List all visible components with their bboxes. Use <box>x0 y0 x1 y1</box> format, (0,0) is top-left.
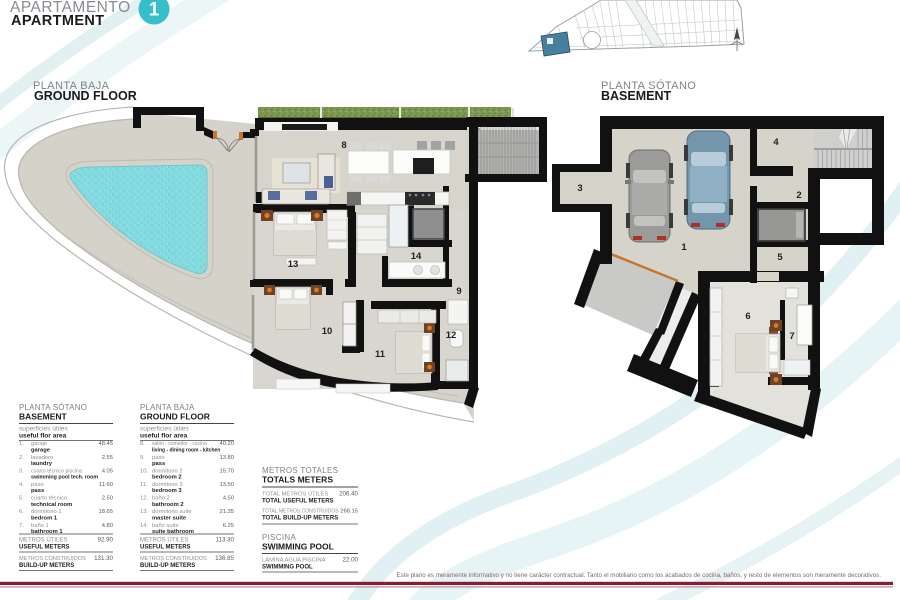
svg-text:TOTAL BUILD-UP METERS: TOTAL BUILD-UP METERS <box>262 516 338 522</box>
svg-text:METROS CONSTRUIDOS: METROS CONSTRUIDOS <box>140 556 207 562</box>
svg-text:9.: 9. <box>140 455 145 461</box>
svg-text:TOTAL USEFUL METERS: TOTAL USEFUL METERS <box>262 499 334 505</box>
svg-text:4.50: 4.50 <box>223 496 234 502</box>
svg-text:lavadero: lavadero <box>31 455 53 461</box>
svg-text:2.50: 2.50 <box>102 496 113 502</box>
svg-text:APARTMENT: APARTMENT <box>11 13 105 29</box>
svg-text:bedrom 1: bedrom 1 <box>31 515 58 521</box>
svg-text:2: 2 <box>796 190 801 201</box>
svg-text:5: 5 <box>777 252 783 263</box>
svg-text:dormitorio 3: dormitorio 3 <box>152 482 183 488</box>
svg-text:BASEMENT: BASEMENT <box>19 412 68 422</box>
svg-text:3.: 3. <box>19 468 24 474</box>
svg-text:3: 3 <box>577 183 582 194</box>
svg-text:Este plano es meramente inform: Este plano es meramente informativo y no… <box>397 572 882 579</box>
svg-text:GROUND FLOOR: GROUND FLOOR <box>34 89 137 103</box>
svg-text:cuarto técnico piscina: cuarto técnico piscina <box>31 468 82 474</box>
svg-text:10.: 10. <box>140 468 148 474</box>
svg-text:136.85: 136.85 <box>215 555 234 562</box>
svg-text:useful flor area: useful flor area <box>140 433 188 440</box>
svg-text:13: 13 <box>288 259 299 270</box>
svg-text:USEFUL METERS: USEFUL METERS <box>140 545 191 551</box>
svg-text:1.: 1. <box>19 441 24 447</box>
svg-text:paso: paso <box>152 455 165 461</box>
svg-text:SWIMMING POOL: SWIMMING POOL <box>262 565 313 571</box>
svg-text:baño 2: baño 2 <box>152 496 170 502</box>
svg-text:9: 9 <box>456 286 461 297</box>
svg-text:40.20: 40.20 <box>219 441 234 447</box>
svg-text:92.90: 92.90 <box>98 537 114 544</box>
svg-text:4.05: 4.05 <box>102 468 113 474</box>
svg-text:7.: 7. <box>19 523 24 529</box>
svg-text:11: 11 <box>375 349 386 360</box>
svg-text:TOTAL METROS ÚTILES: TOTAL METROS ÚTILES <box>262 491 328 498</box>
svg-text:1: 1 <box>149 0 160 21</box>
svg-text:dormitorio 1: dormitorio 1 <box>31 509 62 515</box>
svg-text:2.55: 2.55 <box>102 455 113 461</box>
svg-text:6: 6 <box>745 311 750 322</box>
svg-text:22.00: 22.00 <box>343 557 359 564</box>
svg-text:4.: 4. <box>19 482 24 488</box>
svg-text:BASEMENT: BASEMENT <box>601 89 672 103</box>
svg-text:206.40: 206.40 <box>339 491 358 498</box>
svg-text:living - dining room - kitchen: living - dining room - kitchen <box>152 447 220 453</box>
svg-text:21.35: 21.35 <box>219 509 234 515</box>
svg-text:cuarto técnico: cuarto técnico <box>31 496 67 502</box>
svg-text:48.45: 48.45 <box>98 441 113 447</box>
svg-text:pass: pass <box>152 461 165 467</box>
svg-text:laundry: laundry <box>31 461 53 467</box>
svg-text:268.15: 268.15 <box>340 509 358 515</box>
svg-text:11.: 11. <box>140 482 148 488</box>
svg-text:superficies útiles: superficies útiles <box>19 426 68 433</box>
svg-text:4.80: 4.80 <box>102 523 113 529</box>
svg-text:13.80: 13.80 <box>219 455 234 461</box>
svg-text:bathroom 2: bathroom 2 <box>152 502 184 508</box>
svg-text:13.: 13. <box>140 509 148 515</box>
svg-text:113.30: 113.30 <box>216 537 235 544</box>
svg-text:11.60: 11.60 <box>99 482 113 488</box>
svg-text:12.: 12. <box>140 496 148 502</box>
svg-text:paso: paso <box>31 482 44 488</box>
svg-text:dormitorio 2: dormitorio 2 <box>152 468 183 474</box>
svg-text:GROUND FLOOR: GROUND FLOOR <box>140 412 210 422</box>
svg-text:dormitorio suite: dormitorio suite <box>152 509 192 515</box>
svg-text:bedroom 3: bedroom 3 <box>152 488 182 494</box>
svg-text:METROS CONSTRUIDOS: METROS CONSTRUIDOS <box>19 556 86 562</box>
svg-text:master suite: master suite <box>152 515 187 521</box>
svg-text:4: 4 <box>773 137 779 148</box>
svg-text:TOTAL METROS CONSTRUIDOS: TOTAL METROS CONSTRUIDOS <box>262 509 339 515</box>
svg-text:BUILD-UP METERS: BUILD-UP METERS <box>19 563 74 569</box>
svg-text:18.65: 18.65 <box>98 509 113 515</box>
svg-text:useful flor area: useful flor area <box>19 433 67 440</box>
svg-text:10: 10 <box>322 326 333 337</box>
svg-text:METROS ÚTILES: METROS ÚTILES <box>19 537 67 544</box>
svg-text:13.50: 13.50 <box>219 482 234 488</box>
svg-text:baño 1: baño 1 <box>31 523 49 529</box>
svg-text:14: 14 <box>411 251 422 262</box>
svg-text:6.25: 6.25 <box>223 523 234 529</box>
svg-text:TOTALS METERS: TOTALS METERS <box>262 475 333 485</box>
svg-text:bedroom 2: bedroom 2 <box>152 475 182 481</box>
svg-text:7: 7 <box>789 331 794 342</box>
svg-text:BUILD-UP METERS: BUILD-UP METERS <box>140 563 195 569</box>
svg-text:LÁMINA AGUA PISCINA: LÁMINA AGUA PISCINA <box>262 557 326 564</box>
svg-text:8.: 8. <box>140 441 145 447</box>
svg-text:12: 12 <box>446 330 457 341</box>
svg-text:SWIMMING POOL: SWIMMING POOL <box>262 542 334 552</box>
svg-text:1: 1 <box>681 242 687 253</box>
svg-text:8: 8 <box>341 140 346 151</box>
svg-text:METROS ÚTILES: METROS ÚTILES <box>140 537 188 544</box>
svg-text:15.70: 15.70 <box>219 468 234 474</box>
svg-text:superficies útiles: superficies útiles <box>140 426 189 433</box>
svg-text:garaje: garaje <box>31 441 47 447</box>
svg-text:2.: 2. <box>19 455 24 461</box>
svg-text:14.: 14. <box>140 523 148 529</box>
svg-text:USEFUL METERS: USEFUL METERS <box>19 545 70 551</box>
svg-text:131.30: 131.30 <box>94 555 113 562</box>
svg-text:salón - comedor - cocina: salón - comedor - cocina <box>152 441 207 447</box>
svg-text:5.: 5. <box>19 496 24 502</box>
svg-text:garage: garage <box>31 447 51 453</box>
svg-text:6.: 6. <box>19 509 24 515</box>
svg-text:technical room: technical room <box>31 502 72 508</box>
svg-text:baño suite: baño suite <box>152 523 179 529</box>
svg-text:swimming pool tech. room: swimming pool tech. room <box>31 475 98 481</box>
svg-text:pass: pass <box>31 488 44 494</box>
